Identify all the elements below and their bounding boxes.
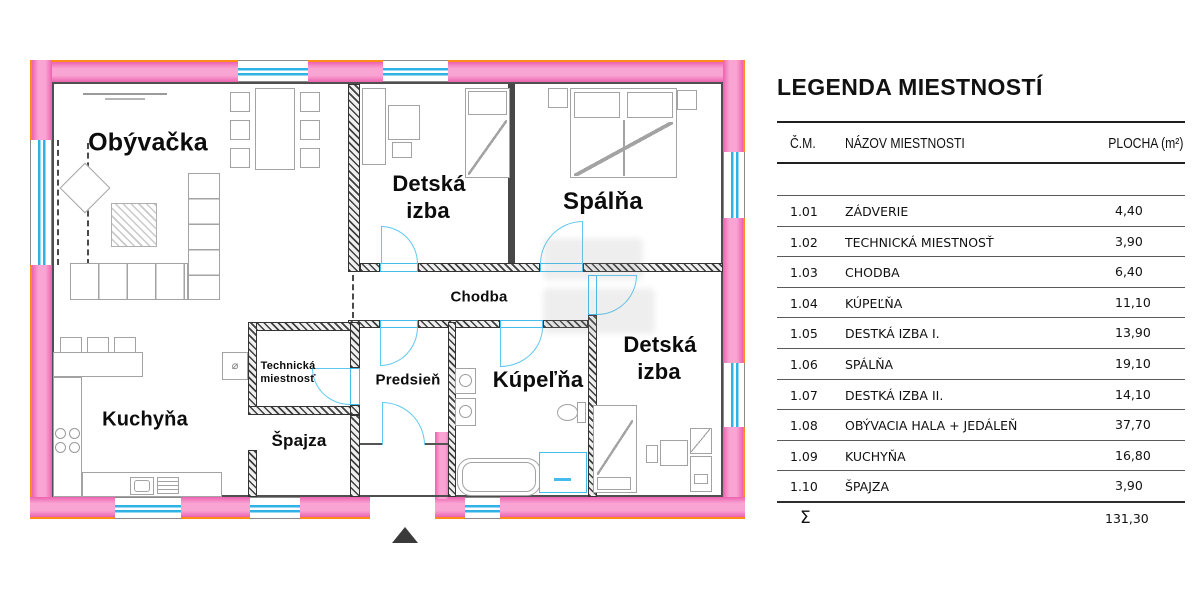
room-name: SPÁLŇA <box>845 357 893 372</box>
door-threshold <box>350 368 360 405</box>
rug <box>111 203 157 247</box>
pillow <box>468 91 507 115</box>
entrance-arrow-icon <box>392 527 418 543</box>
exterior-wall-segment <box>181 497 250 519</box>
pillow <box>574 92 620 118</box>
room-label-detska-izba-1: izba <box>406 198 450 224</box>
divider <box>777 162 1185 164</box>
window <box>723 363 745 427</box>
room-number: 1.01 <box>790 204 818 219</box>
room-label-detska-izba-2: Detská <box>623 332 696 358</box>
legend-header: Č.M. NÁZOV MIESTNOSTI PLOCHA (m²) <box>777 126 1185 162</box>
room-name: ŠPAJZA <box>845 479 889 494</box>
legend-row: 1.09 KUCHYŇA 16,80 <box>777 441 1185 472</box>
water-heater: ⌀ <box>222 352 248 380</box>
legend-row: 1.08 OBÝVACIA HALA + JEDÁLEŇ 37,70 <box>777 410 1185 441</box>
column-header-name: NÁZOV MIESTNOSTI <box>845 136 965 152</box>
room-area: 3,90 <box>1115 478 1143 493</box>
sofa <box>188 173 220 300</box>
dish-rack <box>157 477 179 494</box>
blanket-fold <box>468 120 507 175</box>
dining-chair <box>300 92 320 112</box>
stove-burner <box>55 428 66 439</box>
wardrobe <box>690 428 712 454</box>
diameter-symbol: ⌀ <box>232 360 239 372</box>
pillow <box>597 477 631 490</box>
room-label-spalna: Spálňa <box>563 188 643 216</box>
exterior-wall-segment <box>30 60 238 82</box>
dining-table <box>255 88 295 170</box>
room-area: 11,10 <box>1115 295 1151 310</box>
wardrobe-door-line <box>691 429 710 452</box>
legend-row: 1.04 KÚPEĽŇA 11,10 <box>777 288 1185 319</box>
room-number: 1.06 <box>790 357 818 372</box>
opening-dashed-line <box>352 275 354 318</box>
exterior-wall-segment <box>30 497 115 519</box>
room-label-obyvacka: Obývačka <box>88 129 208 158</box>
exterior-wall-segment <box>300 497 370 519</box>
exterior-wall-segment <box>723 218 745 363</box>
exterior-wall-segment <box>448 60 745 82</box>
room-name: ZÁDVERIE <box>845 204 908 219</box>
legend-row: 1.03 CHODBA 6,40 <box>777 257 1185 288</box>
desk-chair <box>646 445 658 463</box>
legend-total-row: Σ 131,30 <box>777 503 1185 537</box>
room-name: DESTKÁ IZBA I. <box>845 326 940 341</box>
shelf <box>362 88 386 165</box>
tv-console <box>105 98 145 100</box>
window <box>383 60 448 82</box>
stove-burner <box>69 442 80 453</box>
room-label-predsien: Predsieň <box>376 372 441 389</box>
watermark <box>543 288 655 334</box>
shower-unit <box>539 452 587 493</box>
room-label-chodba: Chodba <box>450 289 507 306</box>
technical-room-wall <box>350 322 360 368</box>
room-area: 19,10 <box>1115 356 1151 371</box>
partition-wall <box>350 415 360 497</box>
exterior-wall-segment <box>30 265 52 519</box>
partition-wall <box>418 263 540 272</box>
legend-rows: 1.01 ZÁDVERIE 4,40 1.02 TECHNICKÁ MIESTN… <box>777 195 1185 537</box>
desk-chair <box>392 142 412 158</box>
room-area: 4,40 <box>1115 203 1143 218</box>
room-label-kuchyna: Kuchyňa <box>102 409 188 432</box>
technical-room-wall <box>350 405 360 415</box>
partition-wall <box>360 443 382 445</box>
room-label-spajza: Špajza <box>271 431 326 451</box>
legend-row: 1.10 ŠPAJZA 3,90 <box>777 471 1185 503</box>
technical-room-wall <box>248 406 360 415</box>
room-area: 14,10 <box>1115 387 1151 402</box>
technical-room-wall <box>248 322 257 415</box>
blanket-fold <box>574 122 673 176</box>
legend-row: 1.02 TECHNICKÁ MIESTNOSŤ 3,90 <box>777 227 1185 258</box>
desk <box>388 105 420 140</box>
window <box>465 497 500 519</box>
nightstand <box>548 88 568 108</box>
partition-wall <box>418 320 500 328</box>
window <box>238 60 308 82</box>
room-area: 16,80 <box>1115 448 1151 463</box>
room-label-detska-izba-2: izba <box>637 359 681 385</box>
dining-chair <box>230 148 250 168</box>
washbasin-bowl <box>459 374 472 387</box>
partition-wall <box>425 443 448 445</box>
partition-wall <box>348 84 360 272</box>
exterior-wall-segment <box>500 497 745 519</box>
dining-chair <box>300 120 320 140</box>
exterior-wall-segment <box>723 60 745 152</box>
room-name: OBÝVACIA HALA + JEDÁLEŇ <box>845 418 1017 433</box>
window <box>250 497 300 519</box>
legend-row: 1.01 ZÁDVERIE 4,40 <box>777 196 1185 227</box>
column-header-number: Č.M. <box>790 136 816 152</box>
stove-burner <box>69 428 80 439</box>
room-number: 1.03 <box>790 265 818 280</box>
legend-row: 1.06 SPÁLŇA 19,10 <box>777 349 1185 380</box>
room-number: 1.02 <box>790 235 818 250</box>
room-number: 1.04 <box>790 296 818 311</box>
kitchen-counter <box>53 352 143 377</box>
room-area: 37,70 <box>1115 417 1151 432</box>
room-number: 1.05 <box>790 326 818 341</box>
room-label-technicka: miestnosť <box>260 373 315 385</box>
legend-row: 1.05 DESTKÁ IZBA I. 13,90 <box>777 318 1185 349</box>
technical-room-wall <box>248 322 360 331</box>
room-number: 1.10 <box>790 479 818 494</box>
watermark <box>543 238 643 280</box>
partition-wall <box>248 450 257 497</box>
room-label-detska-izba-1: Detská <box>392 171 465 197</box>
room-area: 3,90 <box>1115 234 1143 249</box>
exterior-wall-segment <box>30 60 52 140</box>
dining-chair <box>300 148 320 168</box>
desk <box>660 440 688 466</box>
dining-chair <box>230 92 250 112</box>
divider <box>777 121 1185 123</box>
legend-row: 1.07 DESTKÁ IZBA II. 14,10 <box>777 380 1185 411</box>
stove-burner <box>55 442 66 453</box>
room-number: 1.07 <box>790 388 818 403</box>
room-name: DESTKÁ IZBA II. <box>845 388 943 403</box>
exterior-wall-segment <box>435 497 465 519</box>
room-label-kupelna: Kúpeľňa <box>493 367 584 393</box>
sofa <box>70 263 188 300</box>
window <box>30 140 52 265</box>
room-legend: LEGENDA MIESTNOSTÍ Č.M. NÁZOV MIESTNOSTI… <box>777 60 1185 560</box>
bathtub-basin <box>462 462 536 492</box>
floor-plan: ⌀ <box>30 60 745 519</box>
window <box>115 497 181 519</box>
nightstand <box>677 90 697 110</box>
room-area: 13,90 <box>1115 325 1151 340</box>
room-number: 1.08 <box>790 418 818 433</box>
cabinet-drawer <box>694 474 708 484</box>
room-name: CHODBA <box>845 265 900 280</box>
exterior-wall-segment <box>308 60 383 82</box>
sink-basin <box>134 480 150 492</box>
sum-symbol: Σ <box>800 508 811 528</box>
room-label-technicka: Technická <box>261 360 316 372</box>
total-area: 131,30 <box>1105 511 1149 526</box>
room-name: KÚPEĽŇA <box>845 296 902 311</box>
screenshot: ⌀ <box>0 0 1200 600</box>
room-name: TECHNICKÁ MIESTNOSŤ <box>845 235 994 250</box>
blanket-fold <box>597 420 633 475</box>
washbasin-bowl <box>459 405 472 418</box>
tv-console <box>83 93 167 95</box>
column-header-area: PLOCHA (m²) <box>1108 136 1183 152</box>
door-threshold <box>380 263 418 272</box>
window <box>723 152 745 218</box>
dining-chair <box>230 120 250 140</box>
shower-unit-mark <box>554 478 571 481</box>
pillow <box>627 92 673 118</box>
room-number: 1.09 <box>790 449 818 464</box>
toilet-bowl <box>557 404 578 421</box>
legend-title: LEGENDA MIESTNOSTÍ <box>777 74 1043 101</box>
room-area: 6,40 <box>1115 264 1143 279</box>
partition-wall <box>360 263 380 272</box>
toilet-tank <box>577 402 586 423</box>
ceiling-dashed-line <box>57 140 59 265</box>
room-name: KUCHYŇA <box>845 449 906 464</box>
